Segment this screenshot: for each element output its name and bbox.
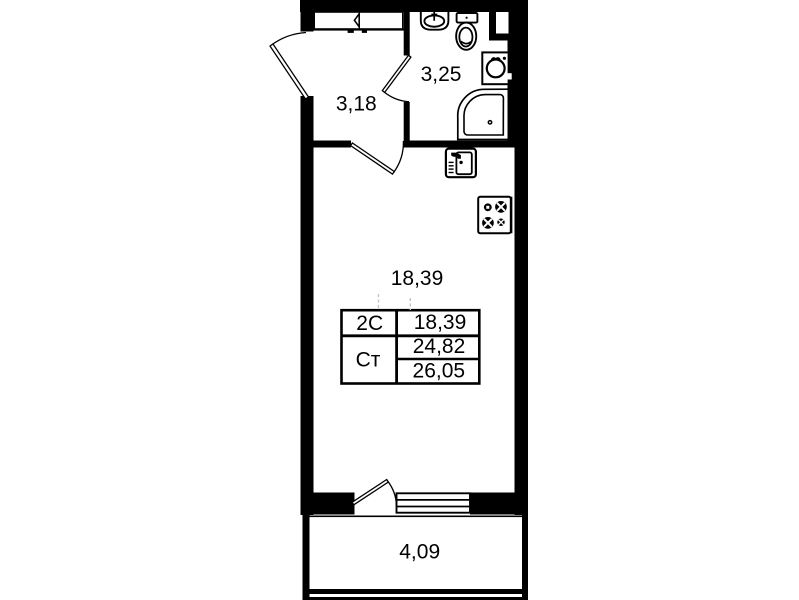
svg-text:Ст: Ст (356, 349, 381, 372)
svg-text:3,18: 3,18 (336, 93, 377, 116)
svg-text:2С: 2С (356, 312, 383, 335)
svg-text:18,39: 18,39 (414, 311, 467, 334)
svg-text:4,09: 4,09 (399, 541, 440, 564)
svg-text:24,82: 24,82 (413, 335, 466, 358)
svg-text:18,39: 18,39 (391, 267, 444, 290)
svg-text:26,05: 26,05 (413, 359, 466, 382)
svg-text:3,25: 3,25 (421, 63, 462, 86)
